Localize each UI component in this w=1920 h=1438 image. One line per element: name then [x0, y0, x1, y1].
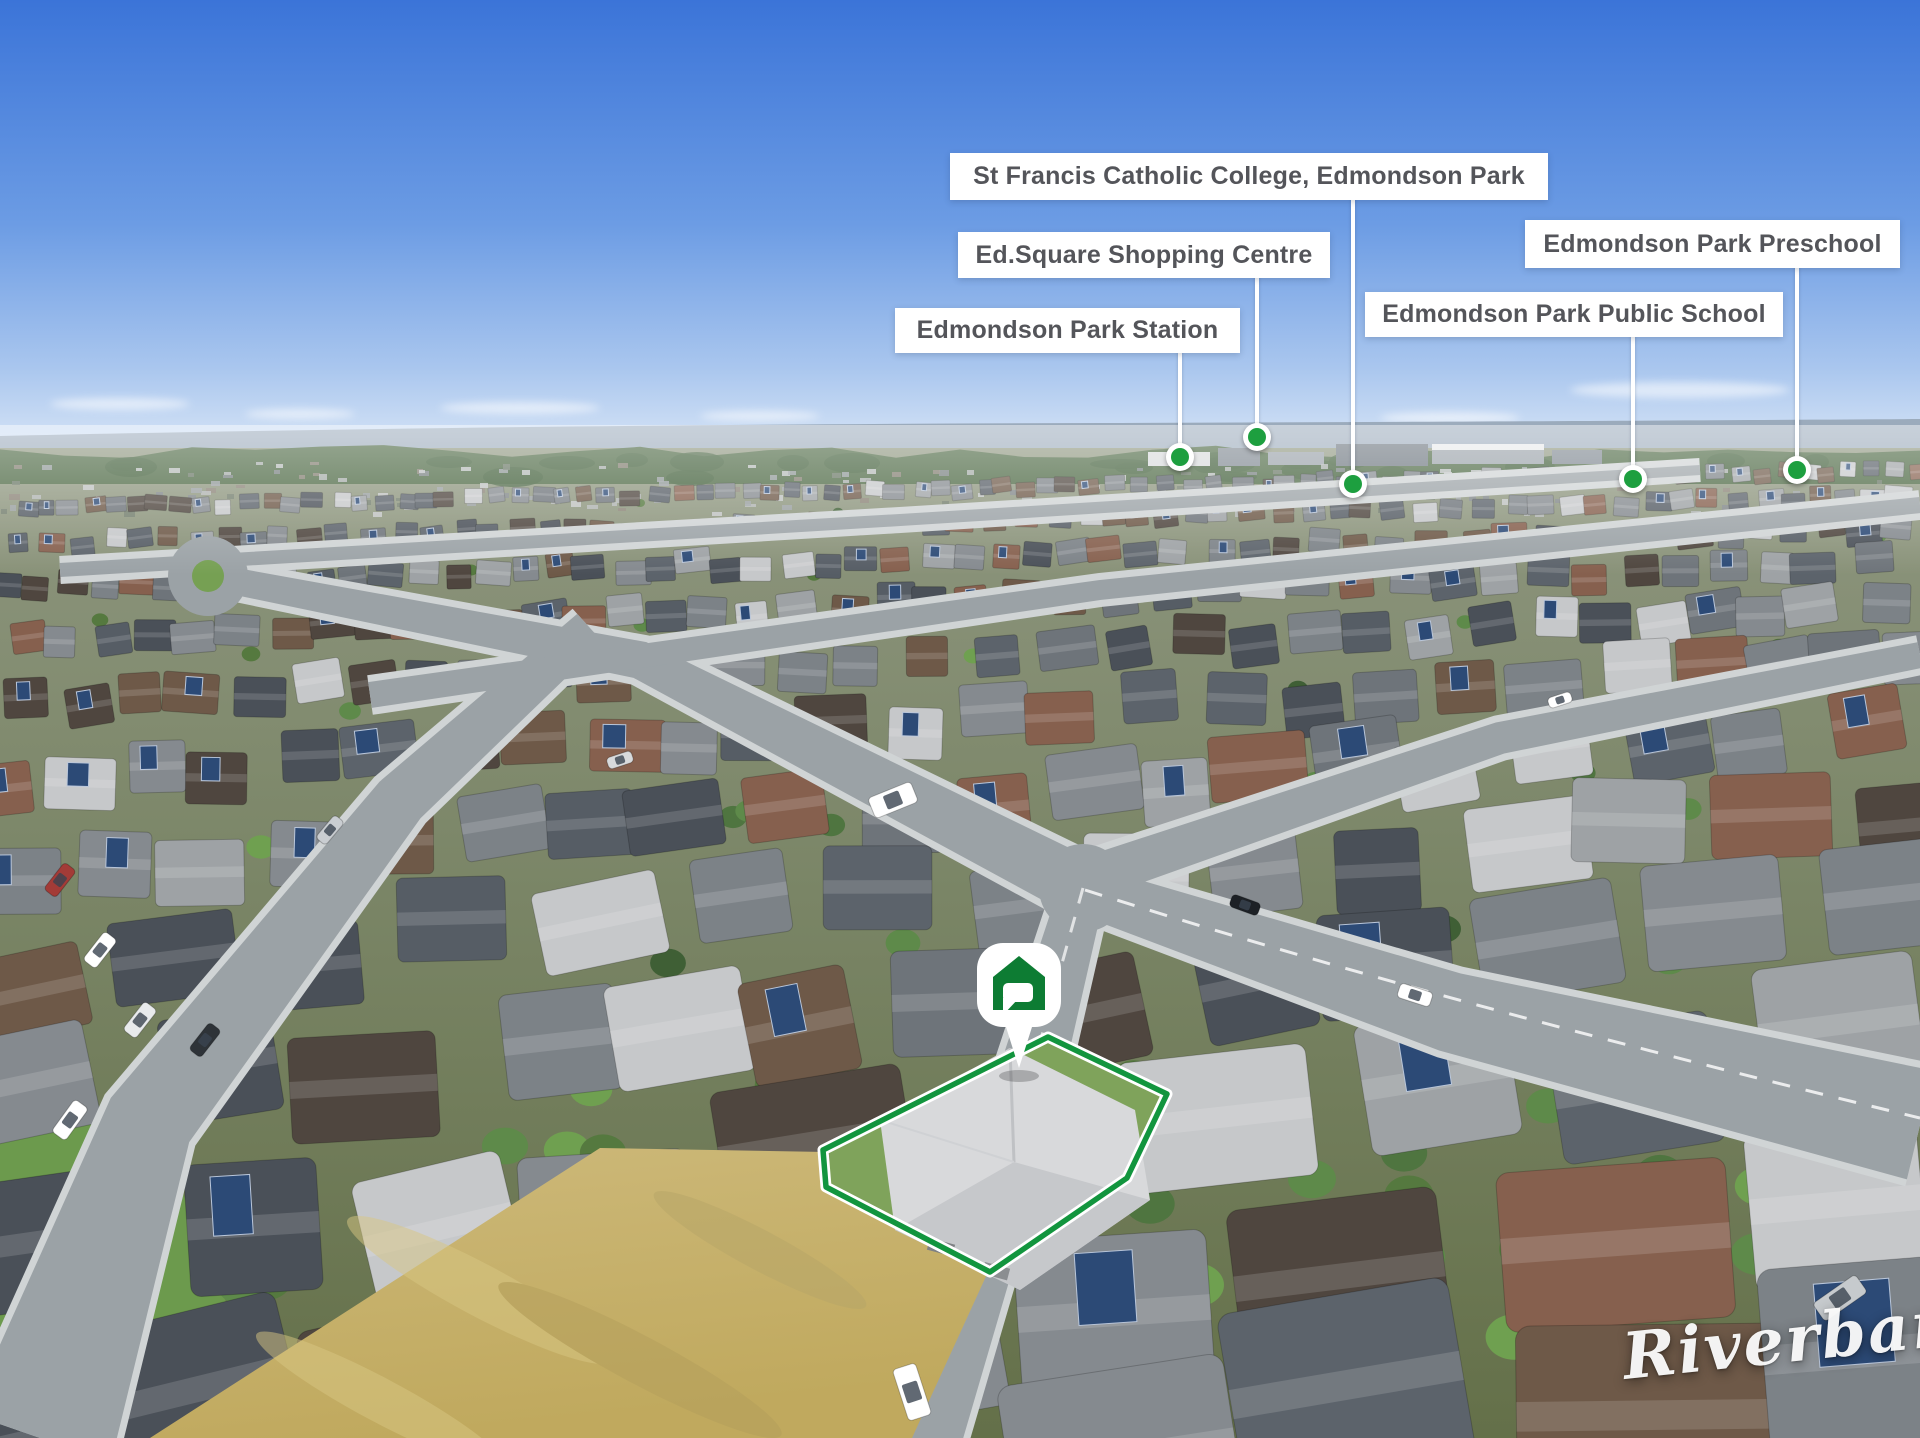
- callout-marker-dot-st-francis-college: [1339, 470, 1367, 498]
- marker-dot-core: [1624, 470, 1642, 488]
- callout-leader-ed-square: [1255, 274, 1259, 439]
- callout-overlay: St Francis Catholic College, Edmondson P…: [0, 0, 1920, 1438]
- marker-dot-core: [1248, 428, 1266, 446]
- callout-label-station: Edmondson Park Station: [895, 308, 1240, 353]
- callout-label-st-francis-college: St Francis Catholic College, Edmondson P…: [950, 153, 1548, 200]
- callout-label-ed-square: Ed.Square Shopping Centre: [958, 232, 1330, 278]
- callout-label-preschool: Edmondson Park Preschool: [1525, 220, 1900, 268]
- agency-watermark: Riverbank: [1619, 1280, 1920, 1395]
- callout-marker-dot-public-school: [1619, 465, 1647, 493]
- callout-marker-dot-station: [1166, 443, 1194, 471]
- callout-leader-public-school: [1631, 333, 1635, 481]
- aerial-property-photo: St Francis Catholic College, Edmondson P…: [0, 0, 1920, 1438]
- callout-leader-preschool: [1795, 264, 1799, 472]
- callout-leader-st-francis-college: [1351, 196, 1355, 486]
- marker-dot-core: [1788, 461, 1806, 479]
- callout-marker-dot-ed-square: [1243, 423, 1271, 451]
- callout-marker-dot-preschool: [1783, 456, 1811, 484]
- marker-dot-core: [1344, 475, 1362, 493]
- callout-label-public-school: Edmondson Park Public School: [1365, 292, 1783, 337]
- marker-dot-core: [1171, 448, 1189, 466]
